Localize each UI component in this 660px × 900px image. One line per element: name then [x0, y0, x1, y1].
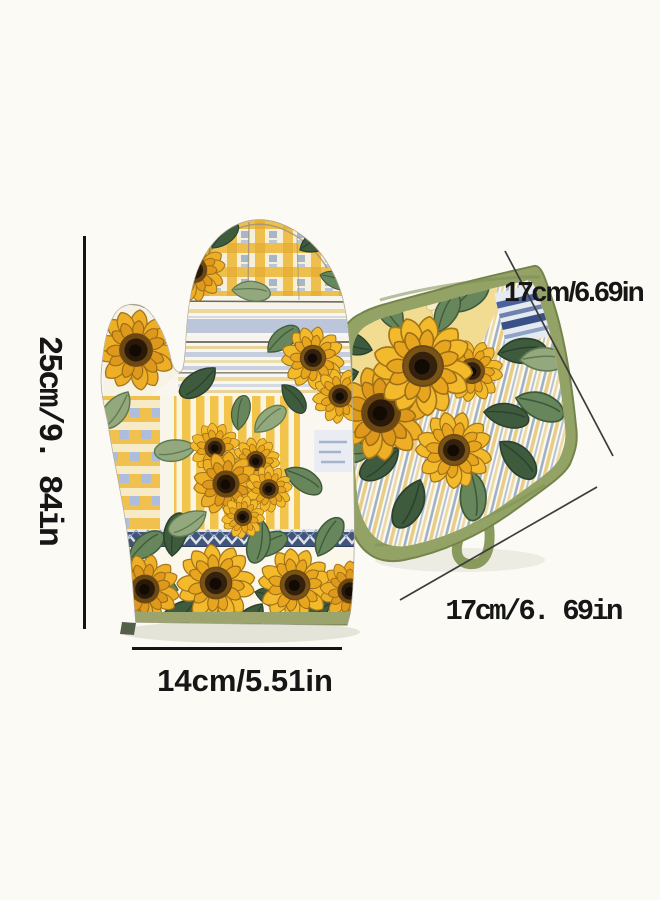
svg-text:25cm/9. 84in: 25cm/9. 84in — [30, 336, 67, 545]
svg-text:14cm/5.51in: 14cm/5.51in — [157, 663, 333, 698]
svg-text:17cm/6. 69in: 17cm/6. 69in — [445, 595, 622, 628]
svg-text:17cm/6.69in: 17cm/6.69in — [504, 276, 644, 307]
